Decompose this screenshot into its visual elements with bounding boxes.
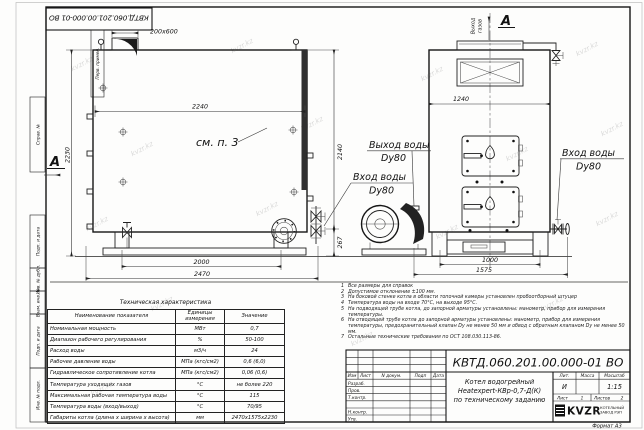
tb-product-name-1: Котел водогрейный <box>465 378 535 386</box>
tech-cell-name: Габариты котла (длина х ширина х высота) <box>48 412 176 423</box>
notes-block: 1Все размеры для справок 2Допустимое отк… <box>337 284 629 341</box>
tb-scale-value: 1:15 <box>607 383 622 391</box>
lifting-lug <box>292 39 301 50</box>
title-block: КВТД.060.201.00.000-01 ВО Изм Лист N док… <box>346 350 630 430</box>
tech-row: Температура воды (вход/выход)°С70/95 <box>48 401 285 412</box>
tech-cell-value: не более 220 <box>225 379 285 390</box>
tech-cell-units: % <box>176 335 225 346</box>
drain-valve <box>123 223 132 249</box>
dim-left-height: 2230 <box>65 147 72 163</box>
margin-podp-1: Подп. и дата <box>36 227 42 257</box>
tech-table: Наименование показателя Единицыизмерения… <box>47 309 285 424</box>
margin-vzam: Взам. инв. № <box>36 287 42 317</box>
tb-sheets-label: Листов <box>593 395 611 401</box>
tb-sheet-value: 1 <box>581 395 584 401</box>
tech-cell-units: °С <box>176 390 225 401</box>
tech-cell-value: 24 <box>225 346 285 357</box>
tech-row: Диапазон рабочего регулирования%50-100 <box>48 335 285 346</box>
tech-row: Габариты котла (длина х ширина х высота)… <box>48 412 285 423</box>
kvzr-logo-text: KVZR <box>567 406 601 418</box>
tb-doc-number: КВТД.060.201.00.000-01 ВО <box>453 356 624 370</box>
tech-cell-value: 2470х1575х2230 <box>225 412 285 423</box>
note-number: 5 <box>337 307 348 318</box>
tech-row: Гидравлическое сопротивление котлаМПа (к… <box>48 368 285 379</box>
water-in-right-dn: Dy80 <box>576 162 601 173</box>
margin-inv-podl: Инв. № подл. <box>36 380 42 410</box>
note-text: На отводящей трубе котла до запорной арм… <box>348 318 629 335</box>
dim-right-height: 2140 <box>337 144 344 160</box>
margin-perv-primen: Перв. примен. <box>95 47 101 79</box>
tech-cell-name: Расход воды <box>48 346 176 357</box>
tech-cell-value: 70/95 <box>225 401 285 412</box>
tech-cell-name: Температура уходящих газов <box>48 379 176 390</box>
side-edge-band <box>302 50 308 190</box>
tech-cell-units: МПа (кгс/см2) <box>176 357 225 368</box>
dim-front-width: 1240 <box>453 96 469 103</box>
tech-row: Номинальная мощностьМВт0,7 <box>48 324 285 335</box>
margin-podp-2: Подп. и дата <box>36 326 42 356</box>
tb-lit-value: И <box>562 383 567 391</box>
tb-utv: Утв. <box>348 417 357 423</box>
tech-col-value: Значение <box>225 310 285 324</box>
fan-scroll <box>400 203 424 244</box>
tb-nkontr: Н.контр. <box>348 410 367 416</box>
tech-row: Рабочее давление водыМПа (кгс/см2)0,6 (6… <box>48 357 285 368</box>
side-fittings <box>87 114 313 229</box>
logo-caption-2: ЗАВОД РЭП <box>600 411 622 415</box>
tech-cell-value: 0,7 <box>225 324 285 335</box>
dim-pipe-height: 267 <box>337 236 344 248</box>
lower-furnace-door <box>462 187 523 227</box>
tech-cell-value: 115 <box>225 390 285 401</box>
tb-tkontr: Т.контр. <box>348 395 367 401</box>
logo-caption-1: КОТЕЛЬНЫЙ <box>600 405 624 410</box>
tech-table-title: Техническая характеристика <box>47 300 284 309</box>
kvzr-logo-icon <box>555 405 565 417</box>
note-item: 6На отводящей трубе котла до запорной ар… <box>337 318 629 335</box>
note-item: 7Остальные технические требования по ОСТ… <box>337 335 629 341</box>
tb-razrab: Разраб. <box>348 381 365 387</box>
view-a-arrow-label: A <box>49 155 60 170</box>
door-handle <box>464 154 481 159</box>
tb-prov: Пров. <box>348 388 361 394</box>
tech-cell-value: 0,06 (0,6) <box>225 368 285 379</box>
tech-cell-name: Рабочее давление воды <box>48 357 176 368</box>
tb-sheet-label: Лист <box>556 395 568 401</box>
tech-cell-units: мм <box>176 412 225 423</box>
water-inlet-valves <box>311 206 325 244</box>
gas-out-label-1: Выход <box>471 17 477 34</box>
note-item: 5На подводящей трубе котла, до запорной … <box>337 307 629 318</box>
dim-legs-span: 2000 <box>193 259 209 266</box>
gas-out-label-2: газов <box>478 19 484 33</box>
tech-cell-name: Диапазон рабочего регулирования <box>48 335 176 346</box>
water-in-dn: Dy80 <box>369 186 394 197</box>
tech-col-name: Наименование показателя <box>48 310 176 324</box>
water-out-dn: Dy80 <box>381 153 406 164</box>
top-stamp-number: КВТД.060.201.00.000-01 ВО <box>49 14 149 23</box>
outlet-flange <box>272 219 297 244</box>
tech-characteristics: Техническая характеристика Наименование … <box>47 300 284 424</box>
tb-col-izm: Изм <box>348 373 357 379</box>
water-in-label: Вход воды <box>353 172 407 183</box>
tech-cell-name: Максимальная рабочая температура воды <box>48 390 176 401</box>
tech-cell-value: 50-100 <box>225 335 285 346</box>
tb-col-data: Дата <box>432 373 444 379</box>
tb-col-ndoc: N докум. <box>382 373 402 379</box>
see-note-label: см. п. 3 <box>196 136 239 149</box>
blower-fan <box>362 203 427 255</box>
tb-col-podp: Подп <box>415 373 427 379</box>
tech-row: Расход водым3/ч24 <box>48 346 285 357</box>
water-in-right-label: Вход воды <box>562 148 616 159</box>
tb-product-name-2: Heatexpert-КВр-0,7-Д(К) <box>458 387 541 395</box>
margin-sprav: Справ. № <box>36 124 42 145</box>
tech-cell-units: МПа (кгс/см2) <box>176 368 225 379</box>
upper-furnace-door <box>462 136 523 176</box>
door-handle <box>464 205 481 210</box>
format-label: Формат А3 <box>592 424 622 430</box>
boiler-base <box>103 232 306 255</box>
tech-cell-units: °С <box>176 379 225 390</box>
tb-mass-label: Масса <box>581 373 595 379</box>
tech-cell-value: 0,6 (6,0) <box>225 357 285 368</box>
tech-cell-name: Температура воды (вход/выход) <box>48 401 176 412</box>
tb-lit-label: Лит. <box>559 373 570 379</box>
tech-row: Максимальная рабочая температура воды°С1… <box>48 390 285 401</box>
flue-opening <box>457 59 523 86</box>
tech-cell-name: Гидравлическое сопротивление котла <box>48 368 176 379</box>
drawing-sheet: kvzr.kz kvzr.kz kvzr.kz kvzr.kz kvzr.kz … <box>0 0 644 430</box>
view-a-label: A <box>500 14 511 29</box>
tech-row: Температура уходящих газов°Сне более 220 <box>48 379 285 390</box>
dim-front-legs: 1000 <box>482 257 498 264</box>
boiler-front-view <box>429 13 569 270</box>
margin-boxes: Справ. № Подп. и дата Инв. № дубл. Взам.… <box>30 97 45 422</box>
tb-col-list: Лист <box>359 373 371 379</box>
tb-product-name-3: по техническому заданию <box>454 396 546 404</box>
top-pipe-valve <box>523 43 563 66</box>
note-number: 6 <box>337 318 348 335</box>
tech-cell-units: м3/ч <box>176 346 225 357</box>
inlet-valve-right <box>550 220 569 235</box>
tech-cell-units: °С <box>176 401 225 412</box>
tb-scale-label: Масштаб <box>604 373 625 379</box>
note-text: На подводящей трубе котла, до запорной а… <box>348 307 629 318</box>
water-out-label: Выход воды <box>369 140 430 151</box>
dim-front-total: 1575 <box>476 267 492 274</box>
dim-stub: 200х600 <box>150 29 178 36</box>
tech-cell-name: Номинальная мощность <box>48 324 176 335</box>
flue-damper <box>114 39 138 56</box>
dim-total-length: 2470 <box>194 271 210 278</box>
tech-header-row: Наименование показателя Единицыизмерения… <box>48 310 285 324</box>
note-number: 7 <box>337 335 348 341</box>
tech-col-units: Единицыизмерения <box>176 310 225 324</box>
tb-sheets-value: 2 <box>621 395 624 401</box>
tech-col-units-2: измерения <box>178 317 222 323</box>
tech-cell-units: МВт <box>176 324 225 335</box>
note-text: Остальные технические требования по ОСТ … <box>348 335 629 341</box>
dim-top-width: 2240 <box>192 104 208 111</box>
